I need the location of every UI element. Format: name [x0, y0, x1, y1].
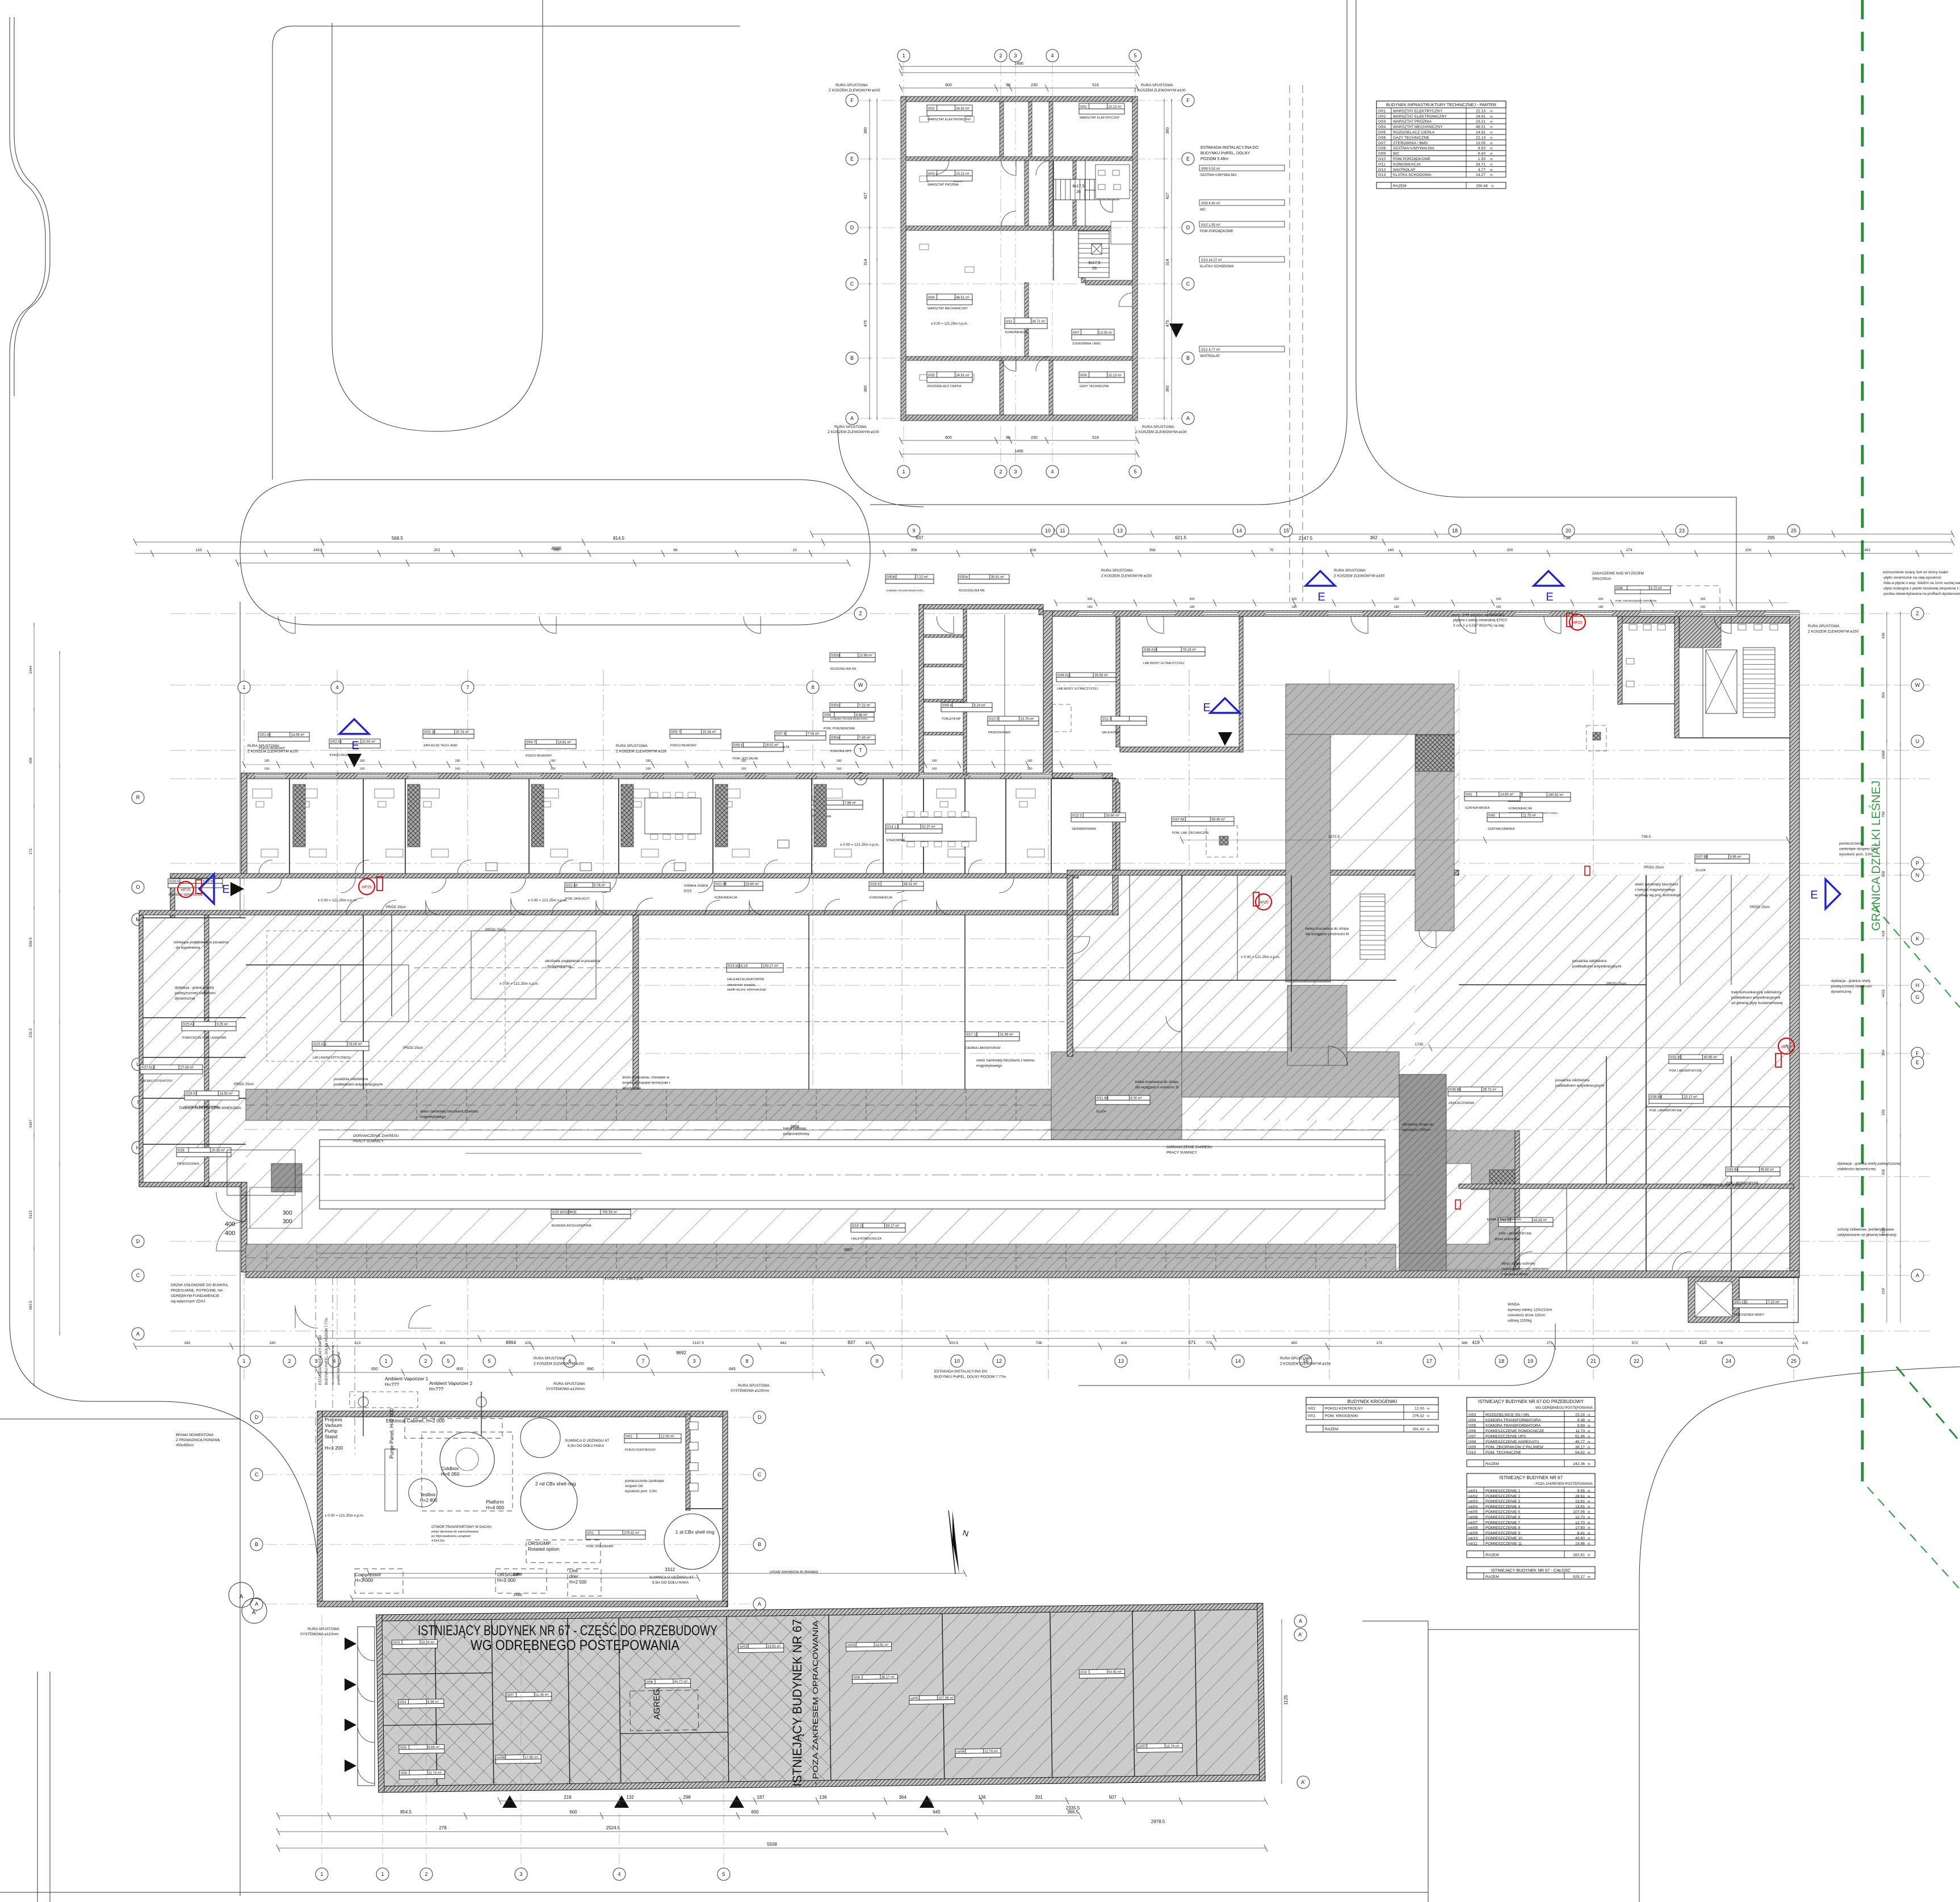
svg-text:drzwi przesuwne, chowane w: drzwi przesuwne, chowane w	[622, 1076, 670, 1080]
svg-text:G: G	[1915, 994, 1919, 1000]
svg-text:D: D	[136, 1238, 140, 1244]
svg-text:160: 160	[264, 767, 269, 771]
svg-text:738: 738	[1036, 1341, 1042, 1345]
svg-text:SYSTEMOWA ø120mm: SYSTEMOWA ø120mm	[731, 1389, 769, 1393]
svg-text:POKÓJ BIUROWY: POKÓJ BIUROWY	[526, 754, 552, 758]
svg-text:160: 160	[1027, 767, 1032, 771]
svg-text:posadzka oddzielona: posadzka oddzielona	[1572, 959, 1606, 963]
svg-text:BUDYNKU PolFEL, DOLNY POZIOM 7: BUDYNKU PolFEL, DOLNY POZIOM 7.77m	[325, 1318, 329, 1385]
svg-text:E: E	[222, 883, 229, 896]
svg-text:13.75 m²: 13.75 m²	[1021, 718, 1034, 721]
svg-text:stropem GK: stropem GK	[625, 1485, 643, 1488]
svg-text:4: 4	[1051, 469, 1054, 475]
svg-text:113: 113	[355, 1341, 361, 1345]
svg-text:Purge Panel, H=2 000: Purge Panel, H=2 000	[389, 1408, 394, 1459]
svg-text:48.51: 48.51	[1476, 125, 1485, 129]
svg-text:90: 90	[1006, 436, 1010, 440]
svg-text:HALA POMOCNICZA: HALA POMOCNICZA	[851, 1237, 882, 1241]
svg-text:180: 180	[1496, 606, 1501, 609]
svg-text:160: 160	[741, 767, 746, 771]
svg-text:- WG ODRĘBNEGO POSTĘPOWANIA: - WG ODRĘBNEGO POSTĘPOWANIA	[1533, 1406, 1593, 1410]
svg-text:0/11: 0/11	[1378, 162, 1386, 166]
svg-text:24: 24	[1726, 1358, 1731, 1364]
svg-text:19: 19	[1527, 1358, 1533, 1364]
svg-text:W: W	[1915, 682, 1920, 688]
svg-text:15.34 m²: 15.34 m²	[703, 731, 716, 734]
svg-text:KOMORA TRANSFORMATORA: KOMORA TRANSFORMATORA	[830, 717, 868, 720]
svg-text:podkładkami antywibracyjnymi: podkładkami antywibracyjnymi	[1572, 965, 1621, 969]
svg-text:-płytki ceramiczne na całą wys: -płytki ceramiczne na całą wysokość	[1883, 576, 1942, 580]
svg-text:22: 22	[1634, 1358, 1639, 1364]
svg-text:1735: 1735	[1415, 1043, 1424, 1047]
svg-text:9.78 m²: 9.78 m²	[594, 884, 605, 888]
svg-text:14.27: 14.27	[1476, 173, 1485, 177]
svg-text:201: 201	[1035, 1795, 1043, 1800]
svg-text:obniżenie pogłębienie w posadz: obniżenie pogłębienie w posadzce	[545, 959, 601, 963]
svg-text:22.13: 22.13	[1476, 109, 1485, 113]
svg-text:A: A	[1299, 1618, 1302, 1624]
svg-text:WARSZTAT ELEKTRYCZNY: WARSZTAT ELEKTRYCZNY	[1080, 116, 1120, 120]
svg-text:180: 180	[836, 759, 841, 763]
svg-text:133: 133	[196, 548, 202, 552]
svg-text:63.17 m²: 63.17 m²	[885, 1225, 899, 1228]
svg-text:7.89 m²: 7.89 m²	[845, 802, 856, 805]
svg-text:KOMUNIKACJA: KOMUNIKACJA	[870, 896, 892, 900]
svg-text:5: 5	[1134, 469, 1136, 475]
svg-text:0/02: 0/02	[928, 107, 935, 111]
svg-text:516: 516	[1092, 436, 1099, 440]
svg-text:671: 671	[1188, 1340, 1196, 1345]
svg-text:B: B	[255, 1542, 258, 1547]
svg-text:oddylatowane od głównej konstr: oddylatowane od głównej konstrukcji	[1837, 1233, 1896, 1237]
svg-text:249.5: 249.5	[313, 548, 323, 552]
svg-text:Ambient Vaporizer 2: Ambient Vaporizer 2	[429, 1380, 473, 1386]
svg-text:Z KOSZEM ZLEWOWYM ø150: Z KOSZEM ZLEWOWYM ø150	[1334, 574, 1385, 578]
svg-text:BUNKIER AKCELERATORA: BUNKIER AKCELERATORA	[552, 1224, 591, 1228]
svg-text:radiologicznej nad labiryntem: radiologicznej nad labiryntem	[1501, 1267, 1548, 1271]
svg-text:7.22 m²: 7.22 m²	[916, 576, 927, 580]
svg-text:RURA SPUSTOWA: RURA SPUSTOWA	[616, 744, 648, 748]
svg-text:- POZA ZAKRESEM OPRACOWANIA: - POZA ZAKRESEM OPRACOWANIA	[811, 1620, 820, 1785]
svg-text:282: 282	[184, 1341, 191, 1345]
svg-text:0/50a: 0/50a	[959, 576, 968, 580]
svg-text:podkładkami antywibracyjnymi: podkładkami antywibracyjnymi	[1555, 1084, 1604, 1088]
svg-text:12.00 m²: 12.00 m²	[661, 1435, 674, 1439]
svg-text:136: 136	[978, 1795, 986, 1800]
svg-text:SUWNICA O UDŹWIGU 6T: SUWNICA O UDŹWIGU 6T	[565, 1438, 609, 1443]
svg-text:F: F	[1916, 1051, 1919, 1056]
svg-text:40.95 m²: 40.95 m²	[1703, 1056, 1717, 1060]
svg-text:388: 388	[1462, 1341, 1468, 1345]
svg-text:493.5: 493.5	[29, 1300, 33, 1310]
svg-text:schody żelbetowe, prefabrykowa: schody żelbetowe, prefabrykowane	[1837, 1228, 1894, 1232]
svg-text:STEROWNIA / BMS: STEROWNIA / BMS	[1393, 141, 1428, 145]
svg-text:POKÓJ KONTROLNY: POKÓJ KONTROLNY	[1325, 1406, 1363, 1411]
svg-text:ŚLUZA: ŚLUZA	[1695, 868, 1706, 872]
svg-text:180: 180	[550, 759, 555, 763]
svg-text:ŚLUZA: ŚLUZA	[1096, 1109, 1106, 1114]
svg-text:5: 5	[447, 1358, 450, 1364]
svg-text:54.92: 54.92	[1575, 1451, 1585, 1455]
svg-text:6.40: 6.40	[1478, 152, 1485, 156]
svg-text:Coldbox: Coldbox	[441, 1466, 459, 1471]
svg-text:419: 419	[1121, 1341, 1127, 1345]
svg-text:8.00 m²: 8.00 m²	[1130, 1097, 1141, 1101]
svg-text:160: 160	[550, 767, 555, 771]
svg-text:ist/07: ist/07	[1138, 1745, 1147, 1749]
svg-text:0/01: 0/01	[1308, 1414, 1315, 1418]
svg-text:242.36: 242.36	[1573, 1462, 1585, 1466]
svg-text:A': A'	[1301, 1779, 1306, 1785]
svg-text:0/13: 0/13	[1378, 173, 1386, 177]
svg-text:0/08: 0/08	[646, 1681, 653, 1684]
svg-text:3: 3	[1014, 469, 1017, 475]
svg-text:HP25: HP25	[1781, 1045, 1791, 1049]
svg-text:728: 728	[1717, 1341, 1723, 1345]
svg-text:magnetytowego: magnetytowego	[420, 1115, 446, 1119]
svg-text:13.05: 13.05	[1476, 141, 1485, 145]
svg-text:Z KOSZEM ZLEWOWYM ø150: Z KOSZEM ZLEWOWYM ø150	[1280, 1362, 1331, 1366]
svg-text:0/41: 0/41	[1466, 793, 1472, 797]
svg-text:wymiary kabiny 120x210cm: wymiary kabiny 120x210cm	[1507, 1308, 1552, 1312]
svg-text:8: 8	[745, 1358, 748, 1364]
svg-text:9.38 m²: 9.38 m²	[427, 1701, 439, 1704]
svg-text:E: E	[1203, 702, 1210, 714]
svg-text:LAB.BAD.FOTOKATODY: LAB.BAD.FOTOKATODY	[141, 1080, 173, 1083]
svg-text:BUDYNEK INFRASTRUKTURY TECHNIC: BUDYNEK INFRASTRUKTURY TECHNICZNEJ - PAR…	[1386, 102, 1496, 107]
svg-text:ist/11: ist/11	[1468, 1542, 1478, 1546]
svg-text:PRZEDSIONEK: PRZEDSIONEK	[177, 1162, 200, 1166]
svg-text:WG ODRĘBNEGO POSTĘPOWANIA: WG ODRĘBNEGO POSTĘPOWANIA	[471, 1638, 679, 1653]
svg-text:RURA SPUSTOWA: RURA SPUSTOWA	[1141, 83, 1173, 87]
svg-text:obniżenie stropu do: obniżenie stropu do	[1402, 1123, 1434, 1127]
svg-text:zamknięte stropem GK: zamknięte stropem GK	[1839, 847, 1877, 851]
svg-text:0/31 B6: 0/31 B6	[1097, 1097, 1109, 1101]
svg-text:± 0.00 = 121.25m n.p.m.: ± 0.00 = 121.25m n.p.m.	[1241, 955, 1281, 959]
svg-text:Platform: Platform	[486, 1499, 504, 1505]
svg-text:11.75 m²: 11.75 m²	[1523, 814, 1536, 818]
svg-text:1.93: 1.93	[1478, 157, 1485, 161]
svg-text:HP25: HP25	[1572, 621, 1583, 625]
svg-text:160: 160	[270, 1341, 276, 1345]
svg-text:7.22 m²: 7.22 m²	[1768, 1301, 1779, 1304]
svg-text:C: C	[850, 281, 854, 287]
svg-text:360: 360	[864, 385, 868, 392]
svg-text:wg wytycznych ZDAJ: wg wytycznych ZDAJ	[170, 1300, 205, 1304]
svg-text:22.13 m²: 22.13 m²	[1108, 106, 1122, 109]
svg-text:418: 418	[1882, 930, 1886, 937]
svg-text:275: 275	[1547, 1341, 1553, 1345]
svg-text:m: m	[1588, 1451, 1590, 1455]
svg-text:1490: 1490	[1014, 62, 1023, 66]
svg-text:istniejące pogłębienie w posad: istniejące pogłębienie w posadzce	[174, 940, 229, 944]
svg-text:11: 11	[1060, 528, 1065, 534]
svg-text:POMIESZCZENIE 11: POMIESZCZENIE 11	[1485, 1542, 1522, 1546]
svg-text:DRZWI OSŁONOWE DO BUNKRA,: DRZWI OSŁONOWE DO BUNKRA,	[171, 1283, 229, 1287]
svg-text:SUWNICA O UDŹWIGU 6T: SUWNICA O UDŹWIGU 6T	[649, 1574, 694, 1580]
svg-text:D: D	[1186, 225, 1190, 230]
svg-text:0/02: 0/02	[1378, 115, 1386, 119]
svg-text:ZAPLECZE TECH.-BAD.: ZAPLECZE TECH.-BAD.	[423, 744, 458, 748]
svg-text:P: P	[1916, 860, 1919, 866]
svg-text:Z KOSZEM ZLEWOWYM ø100: Z KOSZEM ZLEWOWYM ø100	[829, 89, 880, 93]
svg-text:274: 274	[1626, 548, 1632, 552]
svg-text:26: 26	[1076, 190, 1081, 194]
svg-text:0/16 8: 0/16 8	[870, 883, 880, 887]
svg-text:25: 25	[1791, 1358, 1797, 1364]
svg-text:WARSZTAT MECHANICZNY: WARSZTAT MECHANICZNY	[927, 307, 968, 310]
svg-text:H=3 000: H=3 000	[355, 1577, 373, 1583]
svg-text:BUDYNKU PolFEL, DOLNY POZIOM 7: BUDYNKU PolFEL, DOLNY POZIOM 7.77m	[934, 1375, 1006, 1379]
svg-text:H=???: H=???	[429, 1386, 444, 1392]
svg-text:E: E	[1810, 889, 1818, 901]
svg-text:90: 90	[1006, 83, 1010, 87]
svg-text:0/10: 0/10	[1378, 157, 1386, 161]
svg-text:180: 180	[741, 759, 746, 763]
svg-text:C: C	[136, 1273, 140, 1278]
svg-text:400: 400	[225, 1221, 235, 1228]
svg-text:2335.5: 2335.5	[1066, 1806, 1080, 1811]
svg-text:21: 21	[1590, 1358, 1596, 1364]
svg-text:0/50d: 0/50d	[831, 654, 840, 658]
svg-text:765: 765	[553, 548, 560, 552]
svg-text:Line: Line	[569, 1568, 578, 1573]
svg-text:0/06: 0/06	[1080, 374, 1087, 377]
svg-text:300: 300	[1087, 598, 1092, 601]
svg-text:pomieszczenie zamknięte: pomieszczenie zamknięte	[625, 1480, 664, 1483]
svg-text:A': A'	[1298, 1632, 1303, 1638]
svg-text:I: I	[137, 1099, 139, 1105]
svg-text:0/01: 0/01	[1080, 106, 1087, 109]
svg-text:drier: drier	[569, 1574, 578, 1579]
svg-text:22.13 m²: 22.13 m²	[1108, 374, 1122, 377]
svg-text:m: m	[1427, 1428, 1430, 1431]
svg-text:dynamicznej: dynamicznej	[1831, 990, 1852, 994]
svg-text:ist/06: ist/06	[956, 1750, 965, 1754]
svg-text:44.33 m²: 44.33 m²	[1533, 1219, 1547, 1223]
svg-text:0/38 B3: 0/38 B3	[1449, 1089, 1461, 1092]
svg-text:303.5: 303.5	[949, 1341, 959, 1345]
svg-text:1: 1	[902, 469, 905, 475]
svg-text:m: m	[1490, 142, 1493, 145]
svg-text:Process: Process	[325, 1417, 342, 1422]
svg-text:13: 13	[1117, 528, 1123, 534]
svg-text:POM.PORZĄDKOWE: POM.PORZĄDKOWE	[1393, 157, 1431, 161]
svg-text:409: 409	[29, 757, 33, 763]
svg-text:12: 12	[996, 1358, 1002, 1364]
svg-text:36.17 m²: 36.17 m²	[882, 1676, 895, 1679]
svg-text:H=???: H=???	[385, 1382, 400, 1387]
svg-text:54.92 m²: 54.92 m²	[1108, 1670, 1122, 1674]
svg-text:E: E	[1317, 591, 1325, 603]
svg-text:3: 3	[519, 1871, 522, 1877]
svg-text:8: 8	[811, 685, 814, 690]
svg-text:13.05 m²: 13.05 m²	[1099, 331, 1113, 335]
svg-text:wysokości 300cm: wysokości 300cm	[1401, 1128, 1430, 1132]
svg-text:RAZEM: RAZEM	[1393, 184, 1407, 188]
svg-text:842: 842	[780, 1341, 787, 1345]
svg-text:Electrical Cabinet, H=2 000: Electrical Cabinet, H=2 000	[386, 1418, 445, 1424]
svg-text:2: 2	[424, 1358, 427, 1364]
svg-text:216: 216	[564, 1795, 572, 1800]
svg-text:ist/05: ist/05	[910, 1697, 919, 1701]
svg-text:0/01: 0/01	[587, 1532, 594, 1535]
svg-text:ścianie,izolowane termicznie i: ścianie,izolowane termicznie i	[622, 1081, 670, 1085]
svg-text:H=2 500: H=2 500	[569, 1580, 587, 1585]
svg-text:0/09: 0/09	[853, 1676, 860, 1680]
svg-text:0/40: 0/40	[1488, 814, 1495, 818]
svg-text:RURA SPUSTOWA: RURA SPUSTOWA	[1142, 425, 1174, 429]
svg-text:KOMORA TRANSFORMATORA: KOMORA TRANSFORMATORA	[886, 589, 924, 592]
svg-text:H=4 000: H=4 000	[486, 1505, 505, 1510]
svg-text:180: 180	[1027, 759, 1032, 763]
svg-text:4.5x4.5m: 4.5x4.5m	[431, 1539, 444, 1543]
svg-text:0/50e: 0/50e	[831, 737, 840, 740]
svg-text:0/05: 0/05	[400, 1746, 407, 1750]
svg-text:akustycznie: akustycznie	[622, 1086, 641, 1090]
svg-text:POMOCNICZE POM. LASEROWE: POMOCNICZE POM. LASEROWE	[182, 1036, 226, 1040]
svg-text:280.82 m²: 280.82 m²	[1548, 794, 1563, 797]
svg-text:8,5m DO DOŁU HAKA: 8,5m DO DOŁU HAKA	[652, 1581, 689, 1585]
svg-text:9.53: 9.53	[1478, 146, 1485, 150]
svg-text:SZATNIA DAMSKA: SZATNIA DAMSKA	[1488, 828, 1515, 831]
svg-text:KOMUNIKACJA: KOMUNIKACJA	[1393, 162, 1421, 166]
svg-text:0/11: 0/11	[1006, 320, 1013, 324]
svg-text:0/14 1.2: 0/14 1.2	[887, 826, 899, 829]
svg-text:78.00 m²: 78.00 m²	[349, 1043, 362, 1047]
svg-text:8,5m DO DOŁU HAKA: 8,5m DO DOŁU HAKA	[568, 1444, 605, 1448]
svg-text:ist/03: ist/03	[740, 1645, 748, 1649]
svg-text:POM. LABORATORYJNE: POM. LABORATORYJNE	[1499, 1232, 1532, 1236]
svg-text:SYSTEMOWA ø110mm: SYSTEMOWA ø110mm	[300, 1632, 338, 1636]
svg-text:0/01: 0/01	[1378, 109, 1386, 113]
svg-text:ISTNIEJĄCY BUDYNEK NR 67: ISTNIEJĄCY BUDYNEK NR 67	[1499, 1475, 1563, 1480]
svg-text:belka mocowana do stropu: belka mocowana do stropu	[1135, 1080, 1179, 1084]
svg-text:0/06 6: 0/06 6	[733, 744, 743, 748]
svg-text:RAZEM: RAZEM	[1485, 1553, 1499, 1557]
svg-text:WARSZTAT ELEKTRONICZNY: WARSZTAT ELEKTRONICZNY	[927, 118, 971, 121]
svg-text:8x17,5: 8x17,5	[1088, 261, 1100, 265]
svg-text:- do wypełnienia: - do wypełnienia	[545, 965, 572, 969]
svg-text:K: K	[1916, 936, 1919, 942]
svg-text:70: 70	[1269, 548, 1274, 552]
svg-text:13.91 m²: 13.91 m²	[875, 1643, 889, 1647]
svg-text:SERWEROWNIA: SERWEROWNIA	[1072, 828, 1096, 831]
svg-text:0/15 3: 0/15 3	[1072, 814, 1082, 818]
svg-text:160: 160	[359, 767, 364, 771]
svg-text:358: 358	[911, 548, 917, 552]
svg-text:magnetytowego: magnetytowego	[976, 1064, 1002, 1068]
svg-text:48.51 m²: 48.51 m²	[956, 296, 969, 300]
svg-text:160: 160	[645, 767, 650, 771]
svg-text:52.27 m²: 52.27 m²	[922, 826, 935, 829]
svg-text:PRÓG 25cm: PRÓG 25cm	[1750, 905, 1770, 909]
svg-text:F: F	[850, 98, 854, 103]
svg-text:D: D	[758, 1414, 762, 1420]
svg-text:159: 159	[1882, 1109, 1886, 1115]
svg-text:24.91 m²: 24.91 m²	[956, 107, 969, 111]
svg-text:507: 507	[1109, 1795, 1117, 1800]
svg-text:180: 180	[359, 759, 364, 763]
svg-text:74: 74	[611, 1341, 615, 1345]
svg-text:0/51 C11: 0/51 C11	[1734, 1301, 1748, 1304]
svg-text:1: 1	[381, 1871, 384, 1877]
svg-text:A': A'	[252, 1610, 257, 1616]
svg-text:± 0.00 = 121.25m n.p.m.: ± 0.00 = 121.25m n.p.m.	[528, 898, 568, 902]
svg-text:10: 10	[954, 1358, 960, 1364]
svg-text:107.06 m²: 107.06 m²	[938, 1697, 954, 1700]
svg-text:1044: 1044	[29, 665, 33, 674]
svg-text:0/44: 0/44	[1616, 587, 1623, 590]
svg-text:RURA SPUSTOWA: RURA SPUSTOWA	[1101, 569, 1133, 573]
svg-text:171: 171	[29, 848, 33, 854]
svg-text:837: 837	[847, 1340, 855, 1345]
svg-text:7.04 m²: 7.04 m²	[808, 733, 819, 736]
svg-text:8x17,5: 8x17,5	[1072, 184, 1084, 188]
svg-text:419: 419	[1472, 1340, 1480, 1345]
svg-text:podwyższonej stabilności: podwyższonej stabilności	[1831, 985, 1872, 989]
svg-text:EI15: EI15	[684, 889, 692, 893]
svg-text:RURA SPUSTOWA: RURA SPUSTOWA	[1334, 569, 1366, 573]
svg-text:14.86: 14.86	[1575, 1542, 1585, 1546]
svg-text:362: 362	[1370, 535, 1378, 540]
svg-text:3: 3	[1014, 53, 1017, 58]
svg-text:180: 180	[1598, 606, 1603, 609]
svg-text:KOMUNIKACJA: KOMUNIKACJA	[715, 896, 737, 900]
svg-text:300: 300	[1291, 598, 1296, 601]
svg-text:18: 18	[1499, 1358, 1504, 1364]
svg-text:27.43 m²: 27.43 m²	[180, 1067, 194, 1070]
svg-text:Vacuum: Vacuum	[325, 1422, 342, 1428]
svg-text:0/01 A2: 0/01 A2	[259, 734, 271, 737]
svg-text:m: m	[1490, 153, 1493, 156]
svg-text:PRÓG 25cm: PRÓG 25cm	[234, 1082, 254, 1086]
svg-text:0/03 10: 0/03 10	[424, 731, 436, 734]
svg-text:360: 360	[1166, 127, 1170, 134]
svg-text:770: 770	[1206, 1341, 1212, 1345]
svg-text:0/05 7: 0/05 7	[671, 731, 681, 734]
svg-text:W: W	[858, 682, 863, 688]
svg-text:230: 230	[1031, 83, 1038, 87]
svg-text:0/03: 0/03	[1378, 120, 1386, 124]
svg-text:połać dachowa do zamontowania: połać dachowa do zamontowania	[431, 1530, 479, 1534]
svg-text:14: 14	[1236, 528, 1242, 534]
svg-text:ZASILACZOWNIA: ZASILACZOWNIA	[1449, 1102, 1474, 1105]
svg-text:2978.5: 2978.5	[1151, 1819, 1165, 1824]
svg-text:dla wciągarki o nośności 8t: dla wciągarki o nośności 8t	[1306, 933, 1349, 937]
svg-text:24.91: 24.91	[1476, 115, 1485, 119]
svg-text:0/28: 0/28	[178, 1149, 184, 1153]
svg-text:650: 650	[371, 1367, 378, 1371]
svg-text:0/04: 0/04	[400, 1701, 406, 1704]
svg-text:30.81 m²: 30.81 m²	[991, 576, 1005, 580]
svg-text:23.21 m²: 23.21 m²	[956, 173, 969, 176]
svg-text:Z: Z	[1916, 611, 1919, 616]
svg-text:RURA SPUSTOWA: RURA SPUSTOWA	[1808, 624, 1840, 628]
svg-text:SZATNIA+UMYWALNIA: SZATNIA+UMYWALNIA	[1200, 174, 1237, 177]
svg-text:26: 26	[1092, 267, 1097, 271]
svg-text:E: E	[850, 156, 854, 162]
svg-text:OGRANICZENIE ZAKRESU: OGRANICZENIE ZAKRESU	[1166, 1145, 1212, 1149]
svg-text:POM. ZASILACZY: POM. ZASILACZY	[565, 897, 590, 901]
svg-text:0/05: 0/05	[1378, 131, 1386, 135]
svg-text:m: m	[1490, 115, 1493, 119]
svg-text:POM. KRIOGENIKI: POM. KRIOGENIKI	[586, 1545, 614, 1548]
svg-text:2: 2	[999, 53, 1002, 58]
svg-text:200: 200	[1507, 548, 1513, 552]
svg-text:9692: 9692	[676, 1350, 686, 1355]
svg-text:Pump: Pump	[325, 1428, 337, 1434]
